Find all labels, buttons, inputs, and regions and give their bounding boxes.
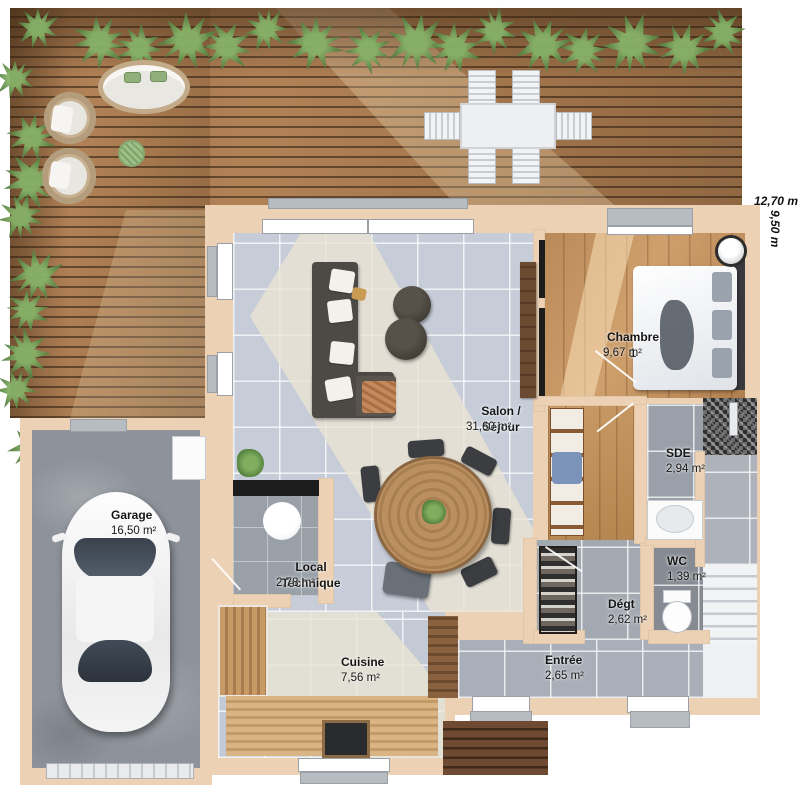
outdoor-dining-chair [512, 70, 540, 104]
throw-blanket [362, 381, 396, 413]
outdoor-dining-chair [424, 112, 460, 140]
table-plant [422, 500, 446, 524]
kitchen-cabinet [218, 605, 268, 697]
car-roof [76, 576, 154, 642]
washbasin [656, 505, 694, 533]
garage-window [70, 419, 127, 432]
bay-window-sill [268, 198, 468, 209]
pillow [328, 268, 355, 293]
garage-door [46, 763, 194, 779]
outdoor-dining-chair [468, 70, 496, 104]
closet-door [539, 240, 545, 298]
wall [640, 545, 654, 640]
outdoor-daybed [98, 60, 190, 114]
tv-console [520, 262, 536, 398]
storage-box-blue [552, 452, 582, 484]
bed-pillow [712, 272, 732, 302]
coffee-table [385, 318, 427, 360]
living-window [217, 243, 233, 300]
pillow [329, 341, 355, 365]
dimension-height: 9,50 m [768, 210, 782, 247]
outdoor-chair [44, 92, 96, 144]
bedroom-window-sill [607, 208, 693, 226]
shower-column [729, 402, 738, 436]
outdoor-dining-chair [556, 112, 592, 140]
wardrobe [539, 546, 577, 634]
window-sill [207, 246, 217, 297]
daybed-cushion [124, 72, 141, 83]
potted-plant [237, 449, 264, 477]
window-mullion [367, 219, 369, 234]
outdoor-dining-chair [468, 148, 496, 184]
pillow [324, 376, 353, 402]
car-windshield [74, 538, 156, 580]
garage-appliance [172, 436, 206, 480]
closet-door [539, 308, 545, 398]
staircase-winders [703, 644, 757, 698]
wall [523, 538, 537, 644]
outdoor-dining-chair [512, 148, 540, 184]
kitchen-tall-cabinet [428, 616, 458, 698]
wall [318, 478, 334, 604]
pillow [327, 299, 354, 324]
outdoor-dining-table [460, 103, 556, 149]
bed-pillow [712, 310, 732, 340]
daybed-cushion [150, 71, 167, 82]
car-rear-window [78, 640, 152, 682]
staircase [703, 565, 757, 644]
entry-floor [458, 640, 703, 698]
entry-porch-deck [443, 721, 548, 775]
kitchen-sink [322, 720, 370, 758]
bedside-lamp [718, 238, 744, 264]
outdoor-side-table [118, 140, 145, 167]
dining-chair [491, 507, 511, 544]
kitchen-window-sill [300, 772, 388, 784]
toilet [662, 601, 692, 633]
window-mat [630, 711, 690, 728]
window-sill [207, 355, 217, 393]
wall [634, 404, 647, 544]
bed-throw [660, 300, 694, 370]
kitchen-window [298, 758, 390, 772]
utility-counter [233, 480, 319, 496]
outdoor-chair [42, 148, 96, 204]
stair-landing-floor [703, 455, 757, 565]
accent-pillow [351, 287, 367, 302]
bed-pillow [712, 348, 732, 378]
bedroom-window [607, 226, 693, 235]
living-window [217, 352, 233, 396]
car [62, 492, 170, 732]
water-heater [263, 502, 301, 540]
floor-plan: Salon / Séjour 31,60 m² Chambre 1 9,67 m… [0, 0, 800, 800]
